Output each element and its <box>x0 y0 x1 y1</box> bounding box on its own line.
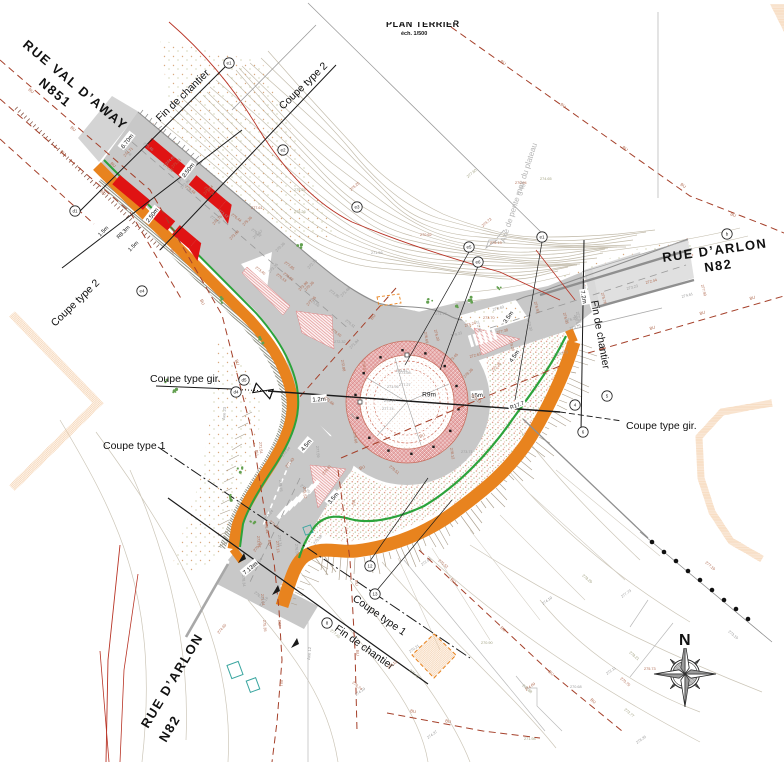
svg-text:275.25: 275.25 <box>294 188 306 192</box>
svg-text:273.70: 273.70 <box>483 316 495 320</box>
svg-text:R9m: R9m <box>422 391 436 398</box>
svg-text:275.26: 275.26 <box>294 210 306 214</box>
svg-text:BU: BU <box>267 540 272 546</box>
svg-text:e5: e5 <box>466 245 472 250</box>
svg-text:BU: BU <box>351 499 357 505</box>
svg-text:270.94: 270.94 <box>515 181 527 185</box>
svg-text:N: N <box>679 632 691 649</box>
svg-text:271.56: 271.56 <box>371 251 383 255</box>
svg-text:e2: e2 <box>280 148 286 153</box>
svg-text:270.90: 270.90 <box>481 641 493 645</box>
svg-text:12: 12 <box>367 564 373 569</box>
svg-text:d4: d4 <box>233 390 239 395</box>
svg-text:271.77: 271.77 <box>435 312 447 316</box>
svg-text:273.71: 273.71 <box>461 450 473 454</box>
svg-text:d5: d5 <box>241 378 247 383</box>
svg-text:Coupe type 1: Coupe type 1 <box>103 440 166 452</box>
svg-text:BU: BU <box>277 620 282 626</box>
svg-text:BU: BU <box>279 680 284 686</box>
svg-text:270.62: 270.62 <box>420 233 432 237</box>
svg-text:273.95: 273.95 <box>387 385 399 389</box>
svg-text:275.19: 275.19 <box>384 399 396 403</box>
svg-text:d1: d1 <box>72 209 78 214</box>
svg-text:e4: e4 <box>139 289 145 294</box>
svg-text:276.13: 276.13 <box>490 241 502 245</box>
svg-text:272.32: 272.32 <box>334 340 346 344</box>
svg-text:275.73: 275.73 <box>644 667 656 671</box>
svg-text:Coupe type gir.: Coupe type gir. <box>150 373 221 385</box>
svg-text:BU: BU <box>354 580 359 586</box>
svg-text:270.68: 270.68 <box>570 685 582 689</box>
svg-text:e1: e1 <box>539 235 545 240</box>
svg-text:e1: e1 <box>226 61 232 66</box>
svg-text:274.65: 274.65 <box>540 177 552 181</box>
svg-text:277.27: 277.27 <box>399 383 411 387</box>
svg-text:éch. 1/500: éch. 1/500 <box>401 31 427 37</box>
svg-text:277.61: 277.61 <box>251 206 263 210</box>
svg-text:13: 13 <box>372 592 378 597</box>
svg-text:277.74: 277.74 <box>382 407 394 411</box>
svg-text:e3: e3 <box>354 205 360 210</box>
svg-text:274.81: 274.81 <box>396 369 408 373</box>
svg-text:e6: e6 <box>475 260 481 265</box>
svg-text:Coupe type gir.: Coupe type gir. <box>626 420 697 432</box>
svg-text:BU: BU <box>355 650 360 656</box>
svg-text:271.98: 271.98 <box>524 737 536 741</box>
